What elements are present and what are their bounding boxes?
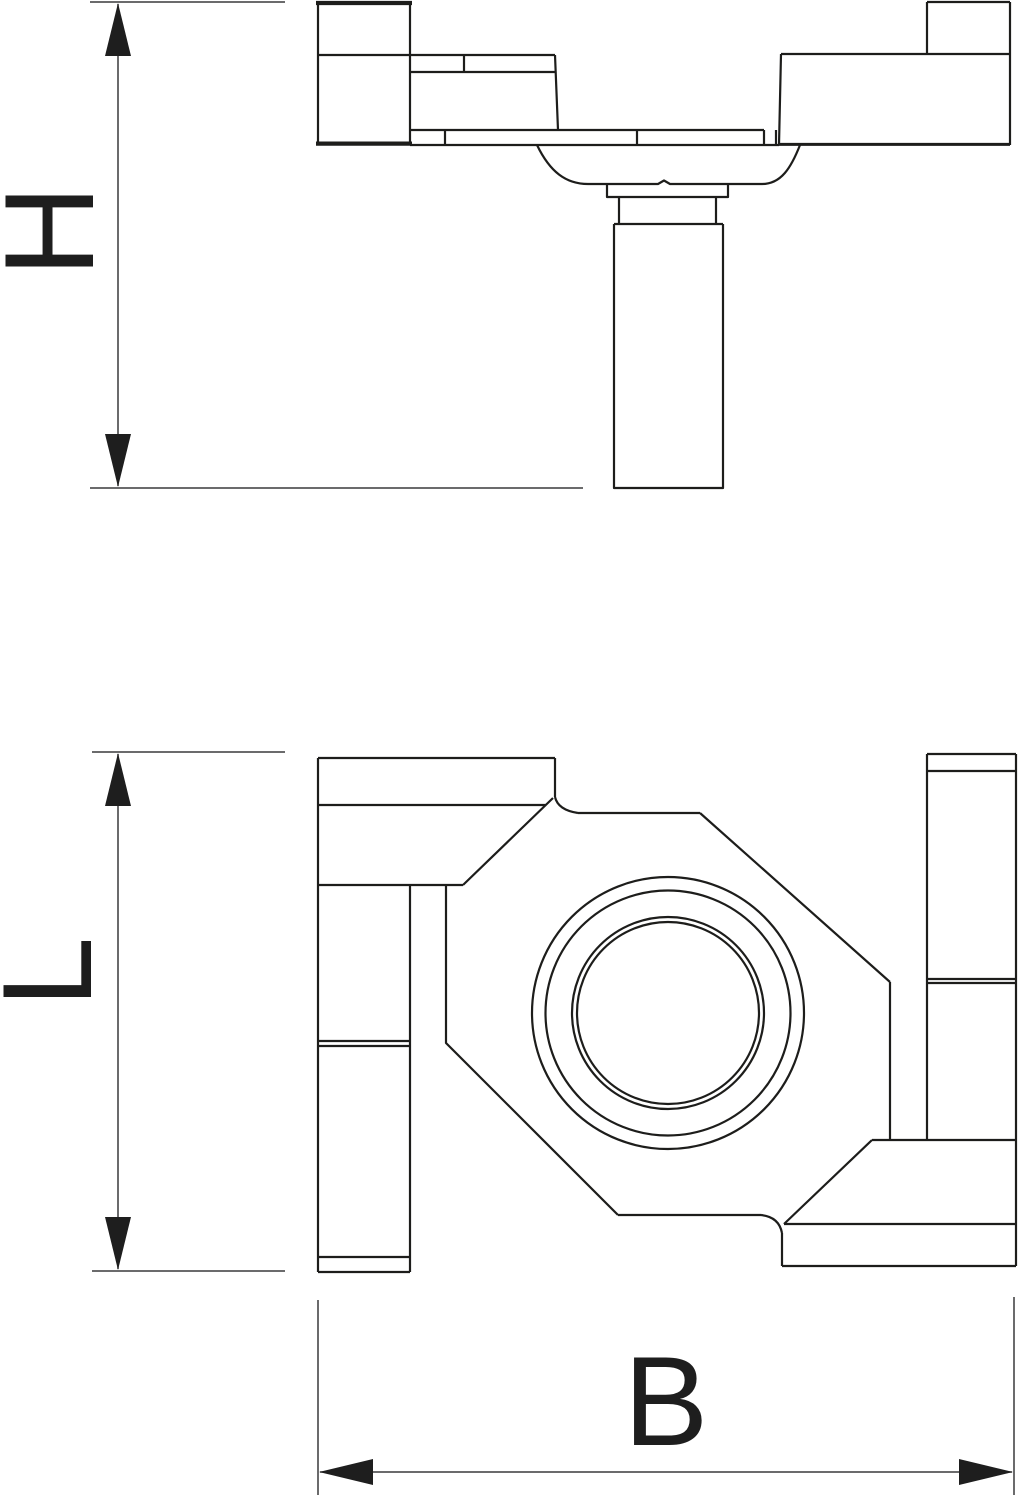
dimension-height: H [0,2,583,488]
arrow-down-icon [105,434,131,487]
height-label: H [0,185,120,277]
elevation-outline [318,2,1010,145]
bore-circle-inner [577,922,759,1104]
bore-circle-inner-wall [572,917,764,1109]
arrow-left-icon [319,1459,373,1485]
width-label: B [624,1330,709,1472]
l-extension-lines [92,752,285,1271]
arrow-up-icon [105,3,131,56]
length-label: L [0,937,118,1008]
elevation-funnel [537,145,800,184]
plan-view [318,754,1016,1272]
dimension-width: B [318,1297,1014,1495]
bore-circle-second [546,891,791,1136]
arrow-up-icon [105,753,131,806]
arrow-down-icon [105,1217,131,1270]
h-extension-lines [90,2,583,488]
elevation-view [316,2,1010,488]
dimension-length: L [0,752,285,1271]
plan-outline [318,754,1016,1272]
elevation-thick-edges [316,3,412,144]
arrow-right-icon [959,1459,1013,1485]
technical-drawing: H L B [0,0,1018,1500]
elevation-shaft [607,184,728,488]
technical-drawing-page: H L B [0,0,1018,1500]
